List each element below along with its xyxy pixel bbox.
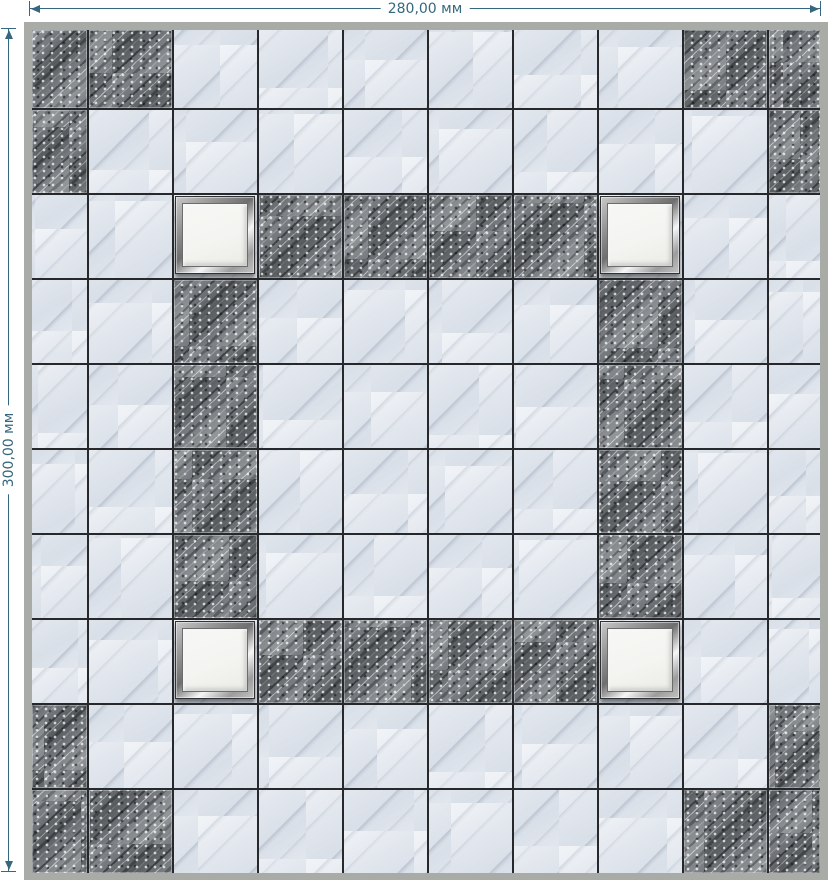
tile-light[interactable] [684,535,767,618]
tile-light[interactable] [32,195,87,278]
extension-tick-top [1,28,16,29]
tile-light[interactable] [599,30,682,108]
tile-light[interactable] [259,365,342,448]
tile-light[interactable] [429,790,512,873]
tile-light[interactable] [769,535,820,618]
tile-dark[interactable] [32,790,87,873]
tile-light[interactable] [259,280,342,363]
tile-light[interactable] [769,195,820,278]
tile-light[interactable] [174,30,257,108]
tile-light[interactable] [514,705,597,788]
tile-light[interactable] [89,365,172,448]
tile-light[interactable] [89,110,172,193]
tile-light[interactable] [514,280,597,363]
tile-light[interactable] [429,535,512,618]
tile-light[interactable] [599,790,682,873]
tile-dark[interactable] [684,790,767,873]
tile-light[interactable] [429,110,512,193]
tile-light[interactable] [259,110,342,193]
dimension-arrow-right-icon [810,5,819,13]
dimension-line-vertical [8,28,9,872]
tile-light[interactable] [174,790,257,873]
tile-dark[interactable] [514,195,597,278]
tile-light[interactable] [259,30,342,108]
tile-light[interactable] [89,195,172,278]
tile-light[interactable] [514,30,597,108]
tile-light[interactable] [89,620,172,703]
tile-dark[interactable] [174,280,257,363]
fixture-panel [182,203,248,267]
tile-dark[interactable] [429,195,512,278]
tile-light[interactable] [429,450,512,533]
tile-light[interactable] [259,705,342,788]
tile-light[interactable] [259,450,342,533]
tile-dark[interactable] [259,620,342,703]
fixture-frame [175,621,255,699]
tile-dark[interactable] [769,110,820,193]
tile-light[interactable] [769,450,820,533]
light-fixture[interactable] [599,620,682,703]
tile-dark[interactable] [599,450,682,533]
tile-light[interactable] [429,30,512,108]
fixture-frame [600,621,680,699]
tile-light[interactable] [89,705,172,788]
tile-dark[interactable] [32,705,87,788]
tile-light[interactable] [344,535,427,618]
tile-light[interactable] [32,450,87,533]
tile-light[interactable] [344,280,427,363]
light-fixture[interactable] [174,620,257,703]
tile-light[interactable] [32,280,87,363]
tile-dark[interactable] [89,30,172,108]
tile-dark[interactable] [769,30,820,108]
tile-light[interactable] [32,620,87,703]
dimension-line-horizontal [30,8,820,9]
light-fixture[interactable] [174,195,257,278]
tile-light[interactable] [684,110,767,193]
tile-light[interactable] [89,280,172,363]
tile-light[interactable] [514,110,597,193]
tile-light[interactable] [429,280,512,363]
fixture-frame [600,196,680,274]
extension-tick-bottom [1,871,16,872]
tile-dark[interactable] [259,195,342,278]
tile-light[interactable] [89,535,172,618]
tile-dark[interactable] [174,365,257,448]
tile-dark[interactable] [684,30,767,108]
tile-light[interactable] [89,450,172,533]
ceiling-panel [24,22,828,880]
dimension-height-label: 300,00 мм [1,406,17,495]
tile-light[interactable] [32,535,87,618]
tile-light[interactable] [769,365,820,448]
tile-dark[interactable] [599,535,682,618]
fixture-panel [182,628,248,692]
tile-light[interactable] [174,705,257,788]
tile-light[interactable] [344,790,427,873]
tile-light[interactable] [684,280,767,363]
tile-light[interactable] [344,450,427,533]
tile-light[interactable] [259,790,342,873]
tile-light[interactable] [684,450,767,533]
dimension-arrow-left-icon [31,5,40,13]
tile-light[interactable] [684,365,767,448]
tile-dark[interactable] [769,705,820,788]
tile-grid [32,30,820,873]
tile-dark[interactable] [344,620,427,703]
tile-dark[interactable] [514,620,597,703]
tile-light[interactable] [769,280,820,363]
tile-dark[interactable] [32,110,87,193]
tile-light[interactable] [429,365,512,448]
dimension-width-label: 280,00 мм [381,1,470,17]
tile-light[interactable] [429,705,512,788]
dimension-arrow-down-icon [5,861,13,870]
tile-light[interactable] [174,110,257,193]
tile-light[interactable] [684,620,767,703]
tile-light[interactable] [684,705,767,788]
tile-light[interactable] [344,30,427,108]
fixture-panel [607,203,673,267]
tile-light[interactable] [514,790,597,873]
tile-dark[interactable] [599,365,682,448]
layout-canvas: 280,00 мм 300,00 мм [0,0,828,880]
fixture-frame [175,196,255,274]
tile-light[interactable] [769,620,820,703]
tile-light[interactable] [514,365,597,448]
extension-tick-right [820,1,821,16]
tile-light[interactable] [599,705,682,788]
tile-light[interactable] [599,110,682,193]
tile-dark[interactable] [429,620,512,703]
tile-dark[interactable] [89,790,172,873]
tile-dark[interactable] [174,450,257,533]
tile-light[interactable] [344,705,427,788]
tile-dark[interactable] [344,195,427,278]
extension-tick-left [29,1,30,16]
tile-dark[interactable] [599,280,682,363]
tile-dark[interactable] [32,30,87,108]
tile-light[interactable] [684,195,767,278]
tile-dark[interactable] [174,535,257,618]
light-fixture[interactable] [599,195,682,278]
tile-light[interactable] [514,535,597,618]
fixture-panel [607,628,673,692]
dimension-arrow-up-icon [5,30,13,39]
tile-light[interactable] [259,535,342,618]
tile-light[interactable] [344,365,427,448]
tile-dark[interactable] [769,790,820,873]
tile-light[interactable] [514,450,597,533]
tile-light[interactable] [32,365,87,448]
tile-light[interactable] [344,110,427,193]
